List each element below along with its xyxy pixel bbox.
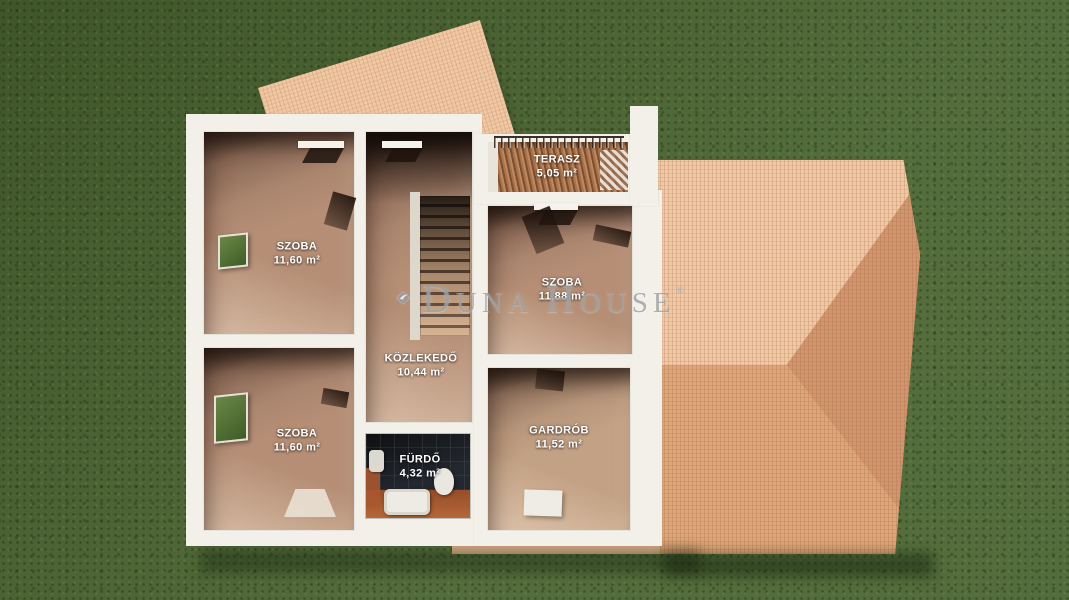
- roof-tile-texture: [656, 160, 934, 554]
- window-sill: [382, 141, 422, 148]
- room-label-furdo: FÜRDŐ 4,32 m²: [399, 453, 440, 482]
- room-name: FÜRDŐ: [399, 453, 440, 467]
- window-opening-grass: [218, 232, 248, 269]
- floorplan-render: TERASZ 5,05 m² SZOBA 11,60 m² SZOBA 11,8…: [0, 0, 1069, 600]
- main-hip-roof: [656, 160, 934, 554]
- room-area: 11,60 m²: [274, 441, 321, 455]
- ground-shadow: [664, 553, 934, 577]
- room-name: KÖZLEKEDŐ: [385, 352, 458, 366]
- room-label-gardrob: GARDRÓB 11,52 m²: [529, 424, 589, 453]
- window-sill: [298, 141, 344, 148]
- room-name: SZOBA: [539, 276, 586, 290]
- bath-tiled-strip: [366, 468, 380, 508]
- door-leaf: [535, 369, 565, 392]
- room-label-szoba-top-left: SZOBA 11,60 m²: [274, 240, 321, 269]
- room-label-szoba-bottom-left: SZOBA 11,60 m²: [274, 427, 321, 456]
- terrace-railing: [494, 136, 624, 148]
- room-area: 11,60 m²: [274, 254, 321, 268]
- room-name: SZOBA: [274, 240, 321, 254]
- window-opening-grass: [214, 392, 248, 444]
- room-area: 11,52 m²: [529, 438, 589, 452]
- staircase: [420, 196, 470, 336]
- ground-shadow: [200, 549, 700, 573]
- terrace-wall-column: [630, 106, 658, 206]
- stair-stringer: [410, 192, 420, 340]
- room-area: 5,05 m²: [534, 167, 580, 181]
- room-name: SZOBA: [274, 427, 321, 441]
- room-area: 11,88 m²: [539, 290, 586, 304]
- room-name: TERASZ: [534, 153, 580, 167]
- room-label-terasz: TERASZ 5,05 m²: [534, 153, 580, 182]
- room-name: GARDRÓB: [529, 424, 589, 438]
- attic-hatch: [524, 489, 563, 516]
- sink: [369, 450, 384, 472]
- room-label-szoba-right: SZOBA 11,88 m²: [539, 276, 586, 305]
- room-area: 4,32 m²: [399, 467, 440, 481]
- room-label-kozlekedo: KÖZLEKEDŐ 10,44 m²: [385, 352, 458, 381]
- room-area: 10,44 m²: [385, 366, 458, 380]
- terrace-louvers: [600, 150, 628, 190]
- bathtub: [384, 489, 430, 515]
